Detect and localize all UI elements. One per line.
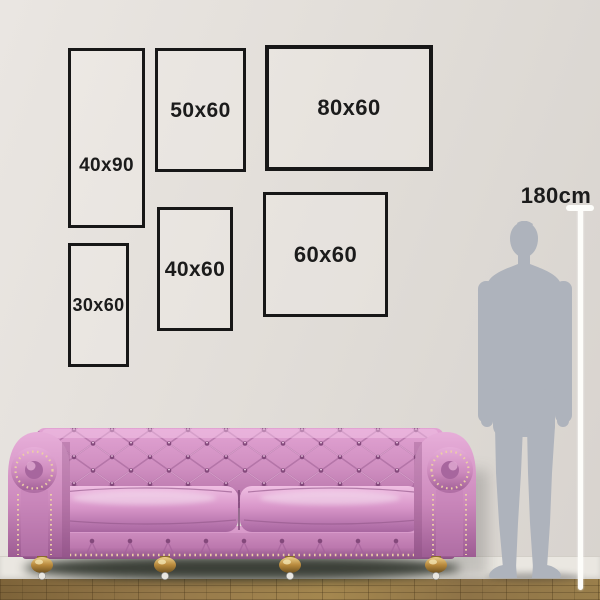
frame-50x60: 50x60: [155, 48, 246, 172]
frame-60x60: 60x60: [263, 192, 388, 317]
size-label-40x60: 40x60: [165, 259, 225, 280]
frame-30x60: 30x60: [68, 243, 129, 367]
frame-40x90: 40x90: [68, 48, 145, 228]
height-ruler-line: [578, 208, 583, 590]
size-label-60x60: 60x60: [294, 244, 357, 266]
frame-80x60: 80x60: [265, 45, 433, 171]
human-silhouette: [477, 221, 573, 581]
size-label-40x90: 40x90: [79, 156, 134, 175]
size-label-30x60: 30x60: [72, 296, 124, 314]
size-label-80x60: 80x60: [317, 97, 380, 119]
pink-chesterfield-sofa: [4, 424, 480, 582]
size-label-50x60: 50x60: [170, 100, 230, 121]
wood-floor: [0, 579, 600, 600]
scene-wall: 40x90 50x60 80x60 30x60 40x60 60x60: [0, 0, 600, 600]
frame-40x60: 40x60: [157, 207, 233, 331]
